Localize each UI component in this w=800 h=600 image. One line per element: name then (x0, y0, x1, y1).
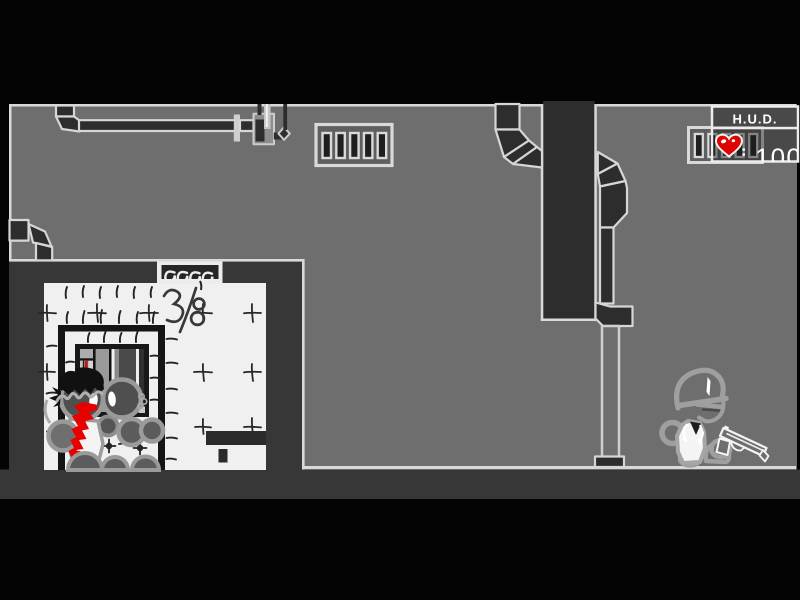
svg-text:H.U.D.: H.U.D. (733, 112, 778, 127)
